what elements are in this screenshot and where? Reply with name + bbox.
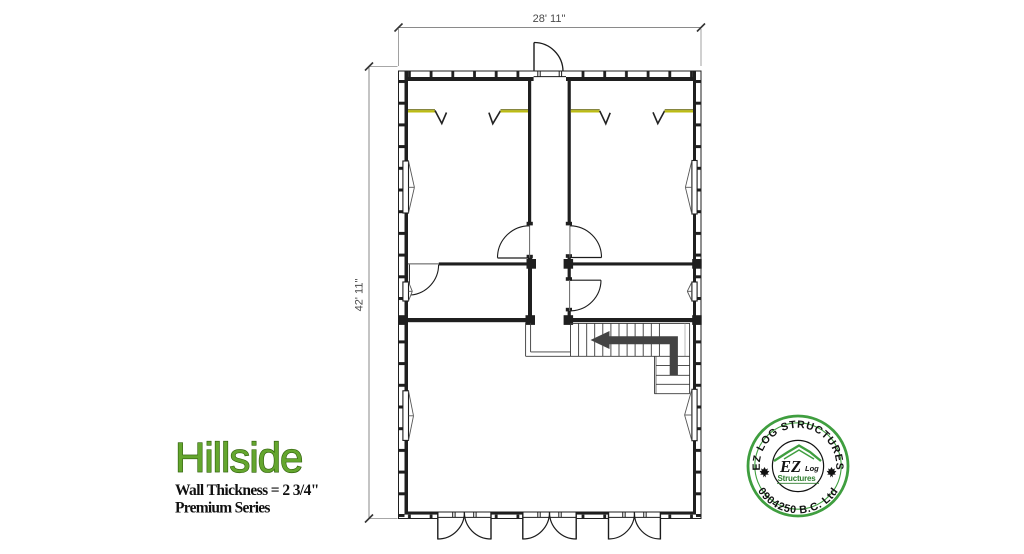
svg-text:Premium Series: Premium Series (175, 500, 270, 517)
svg-text:Hillside: Hillside (175, 434, 302, 481)
svg-text:Wall Thickness = 2 3/4": Wall Thickness = 2 3/4" (175, 482, 319, 499)
svg-text:Log: Log (805, 464, 819, 473)
svg-text:Structures: Structures (778, 474, 817, 483)
svg-text:28' 11": 28' 11" (533, 13, 566, 25)
svg-text:42' 11": 42' 11" (354, 279, 366, 312)
